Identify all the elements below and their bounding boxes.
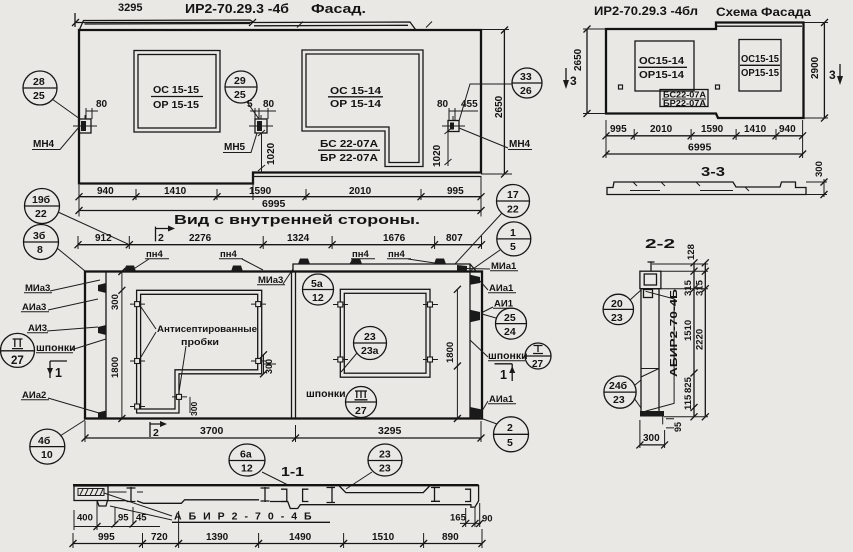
svg-text:25: 25 [33, 90, 45, 102]
svg-text:1: 1 [510, 227, 516, 239]
svg-text:ОС 15-15: ОС 15-15 [153, 85, 199, 96]
svg-text:1410: 1410 [164, 186, 187, 197]
svg-text:ОС15-14: ОС15-14 [639, 56, 684, 67]
svg-text:3б: 3б [33, 230, 46, 242]
svg-text:1676: 1676 [383, 233, 406, 244]
svg-text:45: 45 [136, 513, 147, 524]
svg-text:2900: 2900 [810, 56, 821, 79]
svg-text:2010: 2010 [650, 124, 673, 135]
svg-text:995: 995 [610, 124, 627, 135]
svg-text:23: 23 [379, 463, 391, 475]
svg-text:23: 23 [364, 331, 376, 343]
svg-text:995: 995 [98, 532, 115, 543]
svg-text:2-2: 2-2 [645, 236, 675, 251]
svg-text:6а: 6а [240, 449, 252, 461]
svg-text:300: 300 [189, 402, 199, 416]
svg-text:165: 165 [450, 513, 467, 524]
svg-text:1410: 1410 [744, 124, 767, 135]
svg-text:шпонки: шпонки [36, 342, 76, 354]
svg-text:пробки: пробки [181, 337, 219, 348]
svg-text:300: 300 [643, 433, 660, 444]
svg-text:1-1: 1-1 [281, 465, 304, 479]
svg-text:720: 720 [151, 532, 168, 543]
svg-text:1590: 1590 [249, 186, 272, 197]
svg-text:300: 300 [814, 161, 825, 177]
svg-text:Схема Фасада: Схема Фасада [716, 5, 811, 19]
svg-text:БР22-07А: БР22-07А [663, 99, 706, 108]
svg-text:1: 1 [500, 368, 507, 382]
svg-text:ОР15-15: ОР15-15 [741, 68, 779, 79]
svg-text:24б: 24б [609, 380, 628, 392]
svg-text:6995: 6995 [688, 142, 712, 154]
svg-text:шпонки: шпонки [488, 350, 528, 362]
svg-text:1590: 1590 [701, 124, 724, 135]
svg-text:27: 27 [532, 359, 544, 370]
svg-text:БС 22-07А: БС 22-07А [320, 139, 378, 150]
svg-text:3700: 3700 [200, 425, 224, 437]
svg-text:5: 5 [510, 241, 516, 253]
svg-text:128: 128 [686, 244, 697, 260]
svg-text:300: 300 [264, 359, 274, 374]
svg-text:3-3: 3-3 [701, 165, 725, 179]
svg-text:12: 12 [312, 292, 324, 304]
svg-text:ОР15-14: ОР15-14 [639, 70, 684, 81]
svg-text:БР 22-07А: БР 22-07А [320, 153, 378, 164]
svg-text:300: 300 [110, 294, 121, 310]
svg-text:МН5: МН5 [224, 142, 246, 153]
svg-text:ОС15-15: ОС15-15 [741, 54, 779, 65]
svg-text:1510: 1510 [683, 320, 694, 341]
svg-text:995: 995 [447, 186, 464, 197]
svg-text:ОР 15-15: ОР 15-15 [153, 100, 199, 111]
svg-text:12: 12 [241, 463, 253, 475]
svg-text:АБИР2-70-4Б: АБИР2-70-4Б [669, 289, 680, 377]
svg-text:5: 5 [507, 437, 513, 449]
svg-text:ИР2-70.29.3 -4бл: ИР2-70.29.3 -4бл [594, 4, 698, 18]
svg-text:28: 28 [33, 76, 45, 88]
svg-text:2220: 2220 [695, 329, 706, 350]
svg-text:3: 3 [570, 74, 577, 88]
svg-text:23: 23 [379, 449, 391, 461]
svg-text:ОС 15-14: ОС 15-14 [330, 86, 382, 97]
svg-text:шпонки: шпонки [306, 388, 346, 400]
svg-text:2650: 2650 [573, 48, 584, 71]
svg-text:90: 90 [482, 514, 493, 525]
svg-text:22: 22 [35, 208, 47, 220]
svg-text:807: 807 [446, 233, 463, 244]
svg-text:1510: 1510 [372, 532, 395, 543]
svg-text:2010: 2010 [349, 186, 372, 197]
svg-text:ИР2-70.29.3 -4б: ИР2-70.29.3 -4б [185, 1, 289, 16]
svg-text:МН4: МН4 [509, 139, 531, 150]
svg-text:80: 80 [437, 99, 449, 110]
svg-text:23а: 23а [361, 345, 379, 357]
svg-text:10: 10 [41, 449, 53, 461]
svg-text:1390: 1390 [206, 532, 229, 543]
svg-text:Вид с внутренней стороны.: Вид с внутренней стороны. [174, 213, 420, 227]
svg-text:Антисептированные: Антисептированные [157, 324, 257, 335]
svg-text:17: 17 [507, 189, 519, 201]
svg-text:25: 25 [504, 312, 516, 324]
svg-text:25: 25 [234, 89, 246, 101]
svg-text:МН4: МН4 [33, 139, 55, 150]
svg-text:912: 912 [95, 233, 112, 244]
svg-text:1324: 1324 [287, 233, 310, 244]
svg-text:24: 24 [504, 326, 516, 338]
svg-text:940: 940 [779, 124, 796, 135]
svg-text:80: 80 [263, 99, 275, 110]
svg-text:ОР 15-14: ОР 15-14 [330, 99, 382, 110]
svg-text:6995: 6995 [262, 198, 286, 210]
svg-text:20: 20 [611, 298, 623, 310]
svg-text:1490: 1490 [289, 532, 312, 543]
svg-text:1020: 1020 [266, 142, 277, 165]
svg-text:4б: 4б [38, 435, 51, 447]
svg-text:26: 26 [520, 85, 532, 97]
svg-text:2: 2 [158, 232, 164, 244]
svg-text:1800: 1800 [110, 357, 121, 378]
svg-text:23: 23 [613, 394, 625, 406]
svg-text:22: 22 [507, 204, 519, 216]
svg-text:3295: 3295 [378, 425, 402, 437]
svg-text:1020: 1020 [432, 144, 443, 167]
svg-text:890: 890 [442, 532, 459, 543]
svg-text:2276: 2276 [189, 233, 212, 244]
svg-text:400: 400 [77, 513, 93, 524]
svg-text:3295: 3295 [118, 2, 142, 14]
svg-text:95: 95 [673, 422, 683, 432]
svg-text:23: 23 [611, 312, 623, 324]
svg-text:3: 3 [829, 68, 836, 82]
svg-text:1: 1 [55, 366, 62, 380]
svg-text:2: 2 [507, 422, 513, 434]
svg-text:33: 33 [520, 71, 532, 83]
svg-text:825: 825 [683, 376, 694, 393]
svg-text:29: 29 [234, 75, 246, 87]
svg-text:8: 8 [37, 244, 43, 256]
svg-text:Фасад.: Фасад. [311, 1, 366, 16]
svg-text:940: 940 [97, 186, 114, 197]
svg-text:2650: 2650 [494, 95, 505, 118]
svg-text:315: 315 [695, 279, 706, 296]
svg-text:19б: 19б [32, 194, 51, 206]
svg-text:27: 27 [355, 405, 367, 417]
svg-text:27: 27 [11, 355, 24, 367]
svg-text:5а: 5а [311, 278, 323, 290]
svg-text:95: 95 [118, 513, 129, 524]
svg-text:2: 2 [153, 427, 159, 439]
svg-text:115: 115 [683, 394, 694, 410]
svg-text:АБИР2-70-4Б: АБИР2-70-4Б [174, 511, 319, 523]
svg-text:1800: 1800 [445, 342, 456, 363]
svg-text:315: 315 [683, 279, 694, 296]
svg-text:80: 80 [96, 99, 108, 110]
